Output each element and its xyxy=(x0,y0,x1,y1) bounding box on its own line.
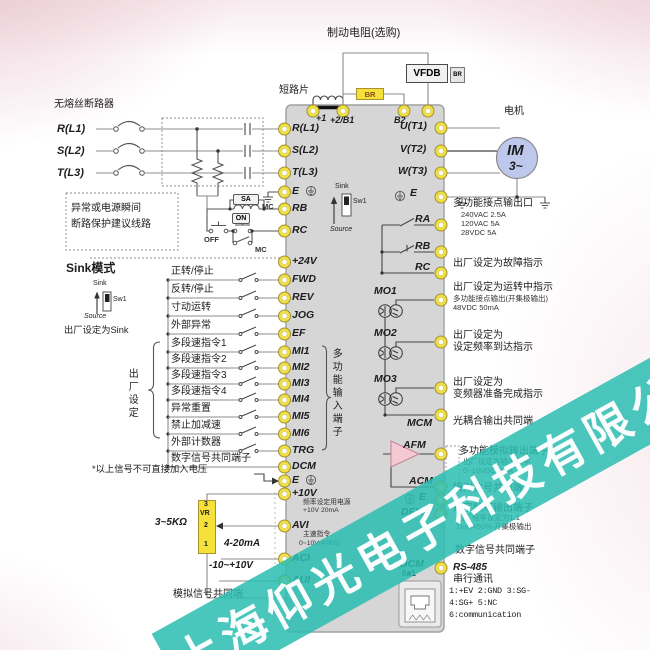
terminal-label-mi3: MI3 xyxy=(292,378,310,390)
terminal-ra-center xyxy=(438,222,443,227)
mo3-default-note-2: 变频器准备完成指示 xyxy=(453,389,543,400)
on-label: ON xyxy=(236,215,247,222)
terminal-mo3-center xyxy=(438,385,443,390)
terminal-mo1-center xyxy=(438,297,443,302)
rs485-label: RS-485 xyxy=(453,562,487,573)
serial-comm-label: 串行通讯 xyxy=(453,574,493,585)
terminal-rb-center xyxy=(438,249,443,254)
terminal-label-mcm: MCM xyxy=(407,418,432,430)
terminal-v(t2)-center xyxy=(438,148,443,153)
terminal-label-mo2: MO2 xyxy=(374,328,397,340)
vfdb-side-box: BR xyxy=(450,67,465,83)
input-row-label: 寸动运转 xyxy=(171,302,211,313)
terminal-label-u(t1): U(T1) xyxy=(400,121,427,133)
terminal-afm-center xyxy=(438,451,443,456)
terminal-mi3-center xyxy=(282,381,287,386)
drive-sw1-label: Sw1 xyxy=(353,198,367,206)
vfdb-brake-unit: VFDB xyxy=(406,64,448,83)
input-row-label: 外部计数器 xyxy=(171,437,221,448)
vr-pin3-label: 3 xyxy=(204,501,208,509)
motor-phase-label: 3~ xyxy=(509,160,523,173)
terminal-mi6-center xyxy=(282,431,287,436)
terminal-+10v-center xyxy=(282,491,287,496)
terminal-u(t1)-center xyxy=(438,125,443,130)
terminal-label-jog: JOG xyxy=(292,310,314,322)
relay-spec-3: 28VDC 5A xyxy=(461,229,496,237)
dc-reactor-coil xyxy=(313,96,343,105)
terminal-label-t(l3): T(L3) xyxy=(292,167,318,179)
input-row-label: 多段速指令2 xyxy=(171,354,227,365)
top-terminal-+1-center xyxy=(310,108,315,113)
terminal-label-r(l1): R(L1) xyxy=(292,123,319,135)
drive-sink-label: Sink xyxy=(335,183,349,191)
terminal-s(l2)-center xyxy=(282,148,287,153)
protection-note-line2: 断路保护建议线路 xyxy=(71,219,151,230)
input-row-label: 正转/停止 xyxy=(171,266,214,277)
off-button-label: OFF xyxy=(204,236,219,244)
top-terminal-B2-center xyxy=(401,108,406,113)
terminal-t(l3)-center xyxy=(282,170,287,175)
terminal-avi-center xyxy=(282,523,287,528)
input-row-label: 外部异常 xyxy=(171,320,211,331)
terminal-label-ra: RA xyxy=(415,214,430,226)
aui-range-label: -10~+10V xyxy=(209,560,253,571)
terminal-r(l1)-center xyxy=(282,126,287,131)
aci-range-label: 4-20mA xyxy=(224,538,260,549)
wiring-diagram: 制动电阻(选购) 短路片 VFDB BR BR 无熔丝断路器 R(L1) S(L… xyxy=(0,0,650,650)
sink-label: Sink xyxy=(93,280,107,288)
terminal-mi2-center xyxy=(282,365,287,370)
pot-resistance-label: 3~5KΩ xyxy=(155,517,187,528)
sa-surge-absorber: SA xyxy=(233,194,259,205)
terminal-dcm-center xyxy=(282,464,287,469)
mo3-default-note-1: 出厂设定为 xyxy=(453,377,503,388)
vr-pin2-label: 2 xyxy=(204,522,208,530)
terminal-label-e: E xyxy=(292,186,299,198)
input-row-label: 反转/停止 xyxy=(171,284,214,295)
terminal-mo2-center xyxy=(438,339,443,344)
rs485-pins-line1: 1:+EV 2:GND 3:SG- xyxy=(449,587,531,597)
terminal-e-center xyxy=(282,189,287,194)
p10-desc-line2: +10V 20mA xyxy=(303,507,339,515)
mo1-sub-note-2: 48VDC 50mA xyxy=(453,304,499,312)
terminal-mi1-center xyxy=(282,349,287,354)
terminal-label-+10v: +10V xyxy=(292,488,317,500)
phase-r-label: R(L1) xyxy=(57,123,85,135)
terminal-label-rc: RC xyxy=(292,225,307,237)
terminal-jog-center xyxy=(282,313,287,318)
terminal-fwd-center xyxy=(282,277,287,282)
vr-pin1-label: 1 xyxy=(204,541,208,549)
input-row-label: 数字信号共同端子 xyxy=(171,453,251,464)
relay-output-title: 多功能接点输出口 xyxy=(453,198,533,209)
terminal-label-mo1: MO1 xyxy=(374,286,397,298)
rs485-pins-line3: 6:communication xyxy=(449,611,521,621)
terminal-label-mi2: MI2 xyxy=(292,362,310,374)
terminal-label-v(t2): V(T2) xyxy=(400,144,426,156)
input-row-label: 多段速指令3 xyxy=(171,370,227,381)
input-row-label: 异常重置 xyxy=(171,403,211,414)
terminal-trg-center xyxy=(282,448,287,453)
terminal-label-mi6: MI6 xyxy=(292,428,310,440)
sink-default-note: 出厂设定为Sink xyxy=(64,325,129,335)
terminal-label-rc: RC xyxy=(415,262,430,274)
terminal-rc-center xyxy=(438,270,443,275)
top-terminal-aux-center xyxy=(425,108,430,113)
sink-mode-title: Sink模式 xyxy=(66,262,115,275)
terminal-label-mi5: MI5 xyxy=(292,411,310,423)
terminal-e-center xyxy=(282,478,287,483)
motor-title: 电机 xyxy=(504,106,524,117)
top-terminal-+2/B1-center xyxy=(340,108,345,113)
terminal-label-mi1: MI1 xyxy=(292,346,310,358)
terminal-dcm-center xyxy=(438,565,443,570)
vfdb-label: VFDB xyxy=(413,68,440,79)
brake-resistor-title: 制动电阻(选购) xyxy=(327,27,400,39)
terminal-label-w(t3): W(T3) xyxy=(398,166,427,178)
mc-coil-label: MC xyxy=(262,203,274,211)
sw1-label: Sw1 xyxy=(113,296,127,304)
terminal-rev-center xyxy=(282,295,287,300)
on-button-box: ON xyxy=(232,213,250,224)
phase-t-label: T(L3) xyxy=(57,167,84,179)
terminal-label-fwd: FWD xyxy=(292,274,316,286)
wiper-arrow xyxy=(216,523,223,530)
terminal-rc-center xyxy=(282,228,287,233)
terminal-label-dcm: DCM xyxy=(292,461,316,473)
vr-label: VR xyxy=(200,510,210,518)
top-terminal-label-+2/B1: +2/B1 xyxy=(330,115,354,125)
source-label: Source xyxy=(84,313,106,321)
dcm-note: 数字信号共同端子 xyxy=(455,545,535,556)
rs485-pins-line2: 4:SG+ 5:NC xyxy=(449,599,497,609)
terminal-label-+24v: +24V xyxy=(292,256,317,268)
protection-note-line1: 异常或电源瞬间 xyxy=(71,203,141,214)
terminal-e-center xyxy=(438,194,443,199)
rj45-port-icon xyxy=(399,581,441,627)
terminal-mi5-center xyxy=(282,414,287,419)
terminal-label-rev: REV xyxy=(292,292,314,304)
terminal-rb-center xyxy=(282,206,287,211)
terminal-mcm-center xyxy=(438,412,443,417)
multi-input-group-label: 多功能输入端子 xyxy=(330,348,341,439)
terminal-label-trg: TRG xyxy=(292,445,314,457)
mo2-default-note-2: 设定频率到达指示 xyxy=(453,342,533,353)
rc-default-note: 出厂设定为故障指示 xyxy=(453,258,543,269)
p10-desc-line1: 频率设定用电源 xyxy=(303,499,351,507)
input-row-label: 禁止加减速 xyxy=(171,420,221,431)
terminal-label-e: E xyxy=(410,188,417,200)
terminal-label-rb: RB xyxy=(415,241,430,253)
mcm-note: 光耦合输出共同端 xyxy=(453,416,533,427)
terminal-label-afm: AFM xyxy=(403,440,426,452)
vfdb-side-label: BR xyxy=(453,72,462,78)
input-row-label: 多段速指令1 xyxy=(171,338,227,349)
terminal-label-mi4: MI4 xyxy=(292,394,310,406)
terminal-label-s(l2): S(L2) xyxy=(292,145,318,157)
drive-source-label: Source xyxy=(330,226,352,234)
terminal-ef-center xyxy=(282,331,287,336)
sink-mode-switch xyxy=(94,292,111,315)
terminal-label-e: E xyxy=(292,475,299,487)
note-arrow xyxy=(272,478,279,485)
br-resistor-box: BR xyxy=(356,88,384,100)
mo2-default-note-1: 出厂设定为 xyxy=(453,330,503,341)
no-voltage-note: *以上信号不可直接加入电压 xyxy=(92,464,207,474)
terminal-mi4-center xyxy=(282,397,287,402)
terminal-w(t3)-center xyxy=(438,170,443,175)
breaker-label: 无熔丝断路器 xyxy=(54,99,114,110)
terminal-label-ef: EF xyxy=(292,328,305,340)
terminal-label-rb: RB xyxy=(292,203,307,215)
input-row-label: 多段速指令4 xyxy=(171,386,227,397)
mo1-default-note: 出厂设定为运转中指示 xyxy=(453,282,553,293)
phase-s-label: S(L2) xyxy=(57,145,85,157)
short-circuit-label: 短路片 xyxy=(279,85,309,96)
terminal-label-avi: AVI xyxy=(292,520,309,532)
terminal-label-mo3: MO3 xyxy=(374,374,397,386)
sa-label: SA xyxy=(241,196,251,203)
br-label: BR xyxy=(365,90,376,99)
motor-im-label: IM xyxy=(507,143,524,160)
terminal-+24v-center xyxy=(282,259,287,264)
factory-setting-group-label: 出厂设定 xyxy=(126,368,137,420)
factory-setting-brace xyxy=(148,342,160,438)
mc-contact-label: MC xyxy=(255,246,267,254)
